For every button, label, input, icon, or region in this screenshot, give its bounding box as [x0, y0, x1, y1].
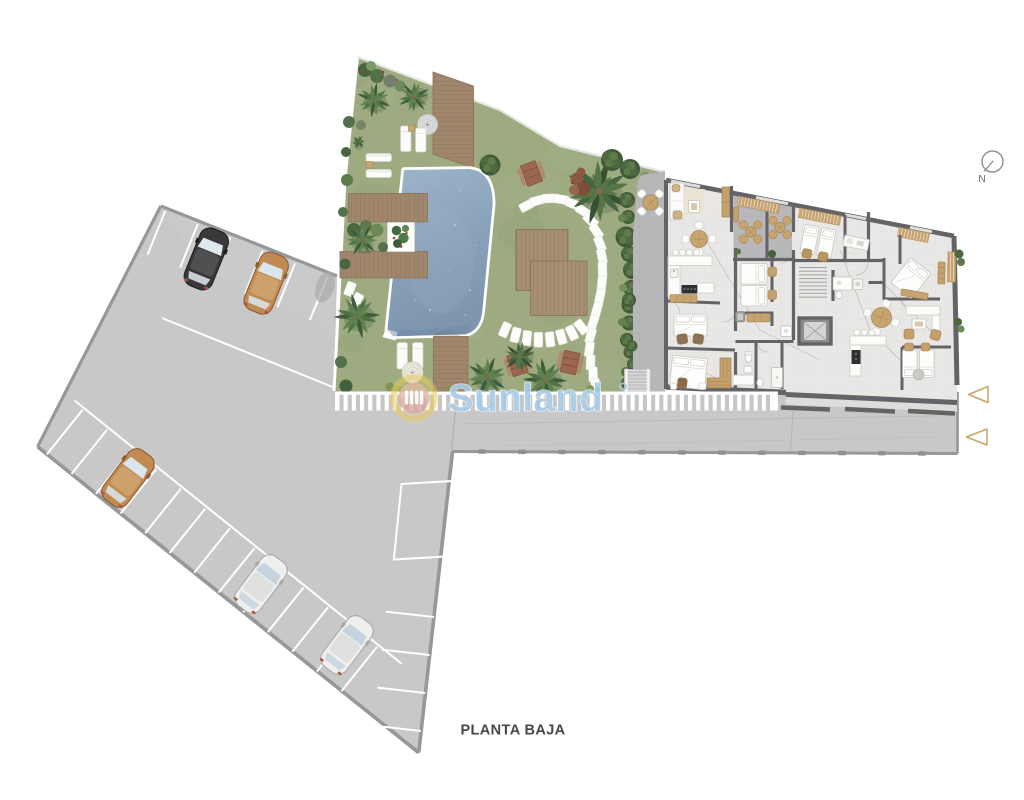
- svg-text:Sunland: Sunland: [448, 377, 603, 420]
- svg-text:PLANTA BAJA: PLANTA BAJA: [460, 723, 565, 739]
- svg-text:N: N: [978, 173, 986, 185]
